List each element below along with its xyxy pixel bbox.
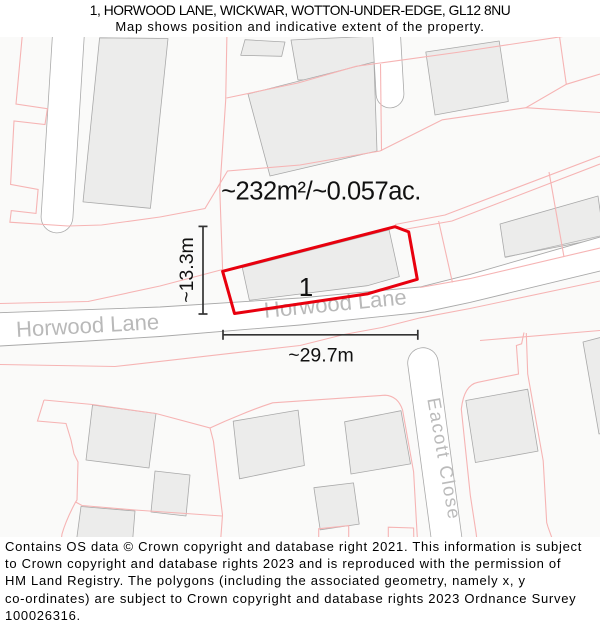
svg-text:~13.3m: ~13.3m bbox=[176, 237, 198, 303]
svg-text:1: 1 bbox=[299, 272, 313, 302]
svg-text:~232m²/~0.057ac.: ~232m²/~0.057ac. bbox=[221, 177, 421, 205]
svg-text:~29.7m: ~29.7m bbox=[288, 345, 354, 367]
